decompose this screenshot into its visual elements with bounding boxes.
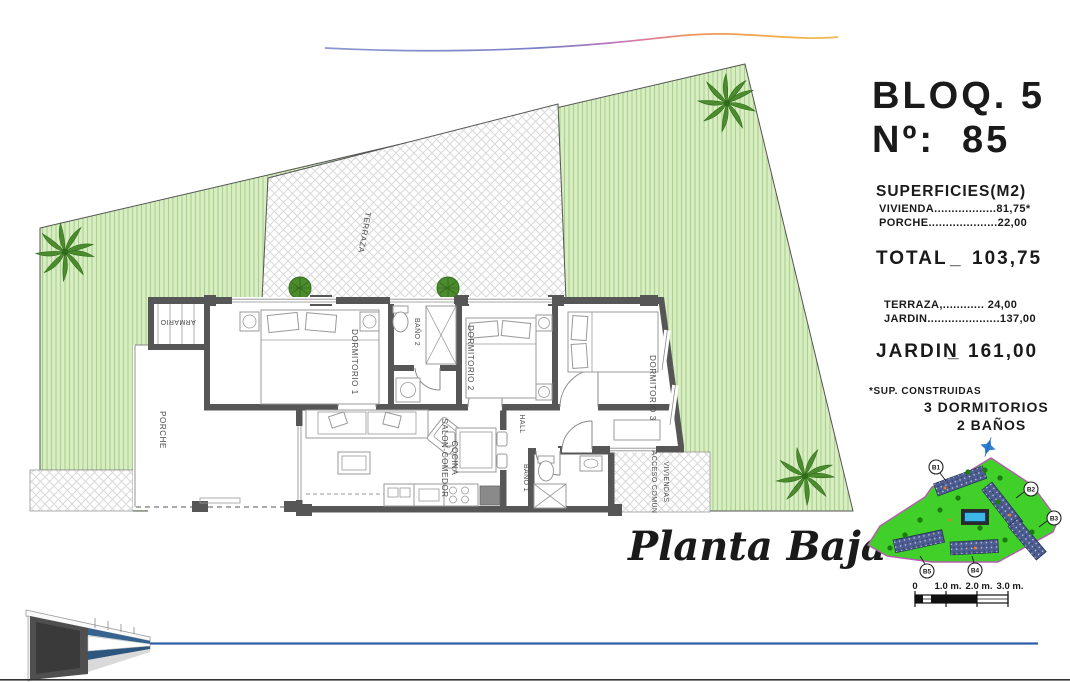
block-marker-b4: B4 (971, 568, 980, 575)
block-marker-b2: B2 (1027, 487, 1036, 494)
lattice-path-left (30, 470, 133, 511)
logo-gradient-squiggle (325, 34, 838, 51)
scale-3m: 3.0 m. (997, 581, 1024, 592)
scale-2m: 2.0 m. (966, 581, 993, 592)
block-marker-b1: B1 (932, 465, 941, 472)
bathrooms-count: 2 BAÑOS (957, 416, 1026, 433)
scale-0: 0 (912, 581, 917, 592)
surface-vivienda: VIVIENDA..................81,75* (879, 203, 1031, 215)
plan-title: Planta Baja (627, 523, 887, 570)
label-dorm2: DORMITORIO 2 (466, 325, 475, 391)
terraza-area (262, 104, 566, 300)
label-bano1: BAÑO 1 (522, 464, 531, 492)
floorplan-page: PORCHE ARMARIO DORMITORIO 1 BAÑO 2 DORMI… (0, 0, 1070, 682)
unit-number: 85 (962, 119, 1010, 161)
scale-1m: 1.0 m. (935, 581, 962, 592)
label-dorm3: DORMITORIO 3 (648, 355, 657, 421)
label-salon-line1: SALON-COMEDOR (440, 418, 449, 497)
label-armario: ARMARIO (160, 318, 196, 325)
building-render (26, 610, 150, 681)
bedrooms-count: 3 DORMITORIOS (924, 399, 1049, 415)
surface-porche: PORCHE....................22,00 (879, 217, 1027, 229)
total-label: TOTAL (876, 248, 948, 269)
site-map: B1 B2 B3 B4 B5 (868, 435, 1061, 578)
label-hall: HALL (518, 414, 525, 433)
total-separator: _ (949, 248, 963, 269)
pool (965, 513, 986, 522)
footnote: *SUP. CONSTRUIDAS (869, 386, 981, 397)
surface-jardin: JARDIN.....................137,00 (884, 313, 1036, 325)
surfaces-title: SUPERFICIES(M2) (876, 183, 1026, 200)
label-bano2: BAÑO 2 (413, 318, 422, 346)
block-title: BLOQ. 5 (872, 75, 1045, 117)
total-value: 103,75 (972, 248, 1042, 269)
jardin-total-value: 161,00 (968, 341, 1038, 362)
acceso-floor (614, 452, 710, 512)
jardin-total-label: JARDIN (876, 341, 959, 362)
compass-icon (977, 435, 998, 459)
label-salon-line2: COCINA (450, 441, 459, 476)
label-acceso-line1: ACCESO COMÚN (650, 451, 659, 514)
unit-label: Nº: (872, 119, 935, 161)
block-marker-b5: B5 (923, 569, 932, 576)
plan-canvas: PORCHE ARMARIO DORMITORIO 1 BAÑO 2 DORMI… (0, 0, 1070, 682)
surface-terraza: TERRAZA,............ 24,00 (884, 299, 1017, 311)
label-porche: PORCHE (158, 411, 167, 449)
label-acceso-line2: VIVIENDAS (662, 462, 669, 503)
jardin-total-separator: _ (947, 341, 961, 362)
block-marker-b3: B3 (1050, 516, 1059, 523)
label-dorm1: DORMITORIO 1 (350, 329, 359, 395)
scale-bar: 0 1.0 m. 2.0 m. 3.0 m. (912, 581, 1023, 607)
info-panel: BLOQ. 5 Nº: 85 SUPERFICIES(M2) VIVIENDA.… (869, 75, 1049, 433)
bottom-border (0, 679, 1070, 681)
bush-icon (289, 277, 311, 299)
